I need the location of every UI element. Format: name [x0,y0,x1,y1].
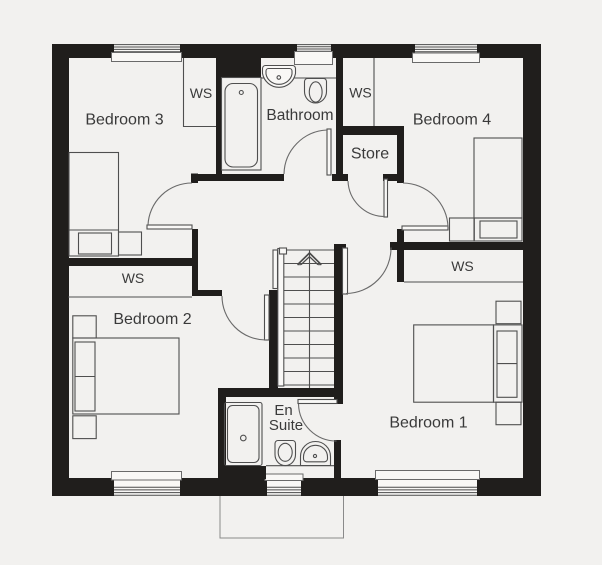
svg-text:Bedroom 1: Bedroom 1 [389,415,467,432]
svg-text:WS: WS [122,270,145,286]
svg-text:Store: Store [351,146,389,163]
svg-text:WS: WS [451,258,474,274]
svg-text:Bathroom: Bathroom [266,107,333,124]
svg-text:Suite: Suite [269,417,303,434]
svg-text:Bedroom 4: Bedroom 4 [413,112,491,129]
svg-text:Bedroom 2: Bedroom 2 [113,311,191,328]
svg-text:Bedroom 3: Bedroom 3 [85,112,163,129]
svg-text:WS: WS [349,85,372,101]
svg-text:WS: WS [190,85,213,101]
